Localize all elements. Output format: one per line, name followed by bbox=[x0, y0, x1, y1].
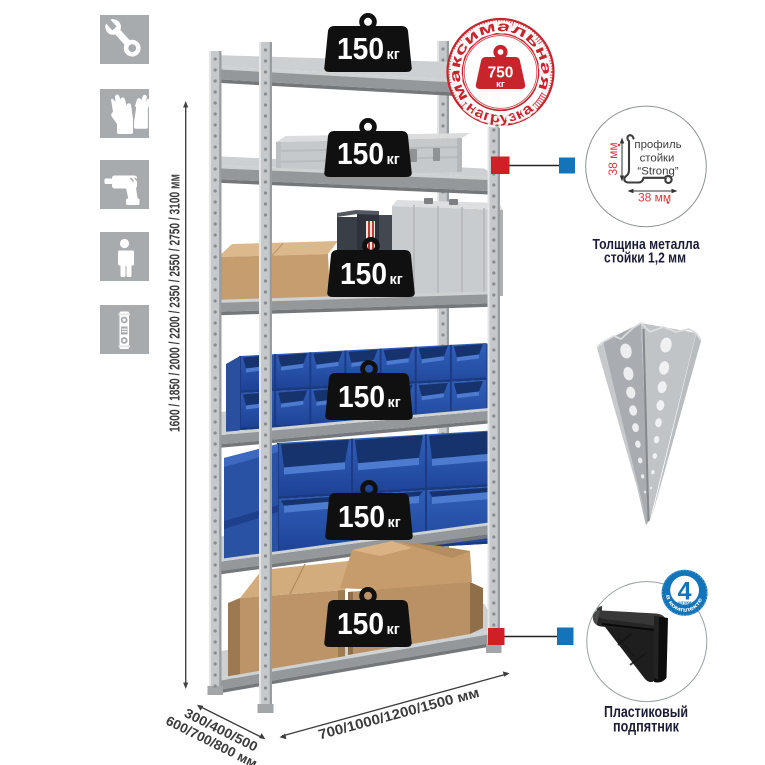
svg-text:стойки 1,2 мм: стойки 1,2 мм bbox=[604, 251, 686, 267]
svg-text:38 мм: 38 мм bbox=[606, 142, 620, 175]
svg-text:150: 150 bbox=[337, 136, 384, 171]
svg-text:кг: кг bbox=[496, 79, 505, 90]
svg-text:38 мм: 38 мм bbox=[638, 191, 671, 205]
svg-text:“Strong”: “Strong” bbox=[637, 166, 678, 178]
svg-text:150: 150 bbox=[337, 606, 384, 641]
svg-text:стойки: стойки bbox=[640, 153, 675, 165]
svg-text:штуки: штуки bbox=[678, 600, 692, 605]
svg-text:кг: кг bbox=[388, 395, 401, 411]
svg-text:1600 / 1850 / 2000 / 2200 / 23: 1600 / 1850 / 2000 / 2200 / 2350 / 2550 … bbox=[167, 174, 184, 432]
svg-text:150: 150 bbox=[337, 31, 384, 66]
svg-text:кг: кг bbox=[387, 622, 400, 638]
svg-text:подпятник: подпятник bbox=[613, 719, 679, 736]
svg-text:профиль: профиль bbox=[634, 139, 681, 151]
svg-text:кг: кг bbox=[390, 272, 403, 288]
svg-text:кг: кг bbox=[387, 47, 400, 63]
svg-text:кг: кг bbox=[387, 152, 400, 168]
svg-text:150: 150 bbox=[338, 499, 385, 534]
svg-text:150: 150 bbox=[338, 379, 385, 414]
svg-text:кг: кг bbox=[388, 515, 401, 531]
svg-text:150: 150 bbox=[340, 256, 387, 291]
